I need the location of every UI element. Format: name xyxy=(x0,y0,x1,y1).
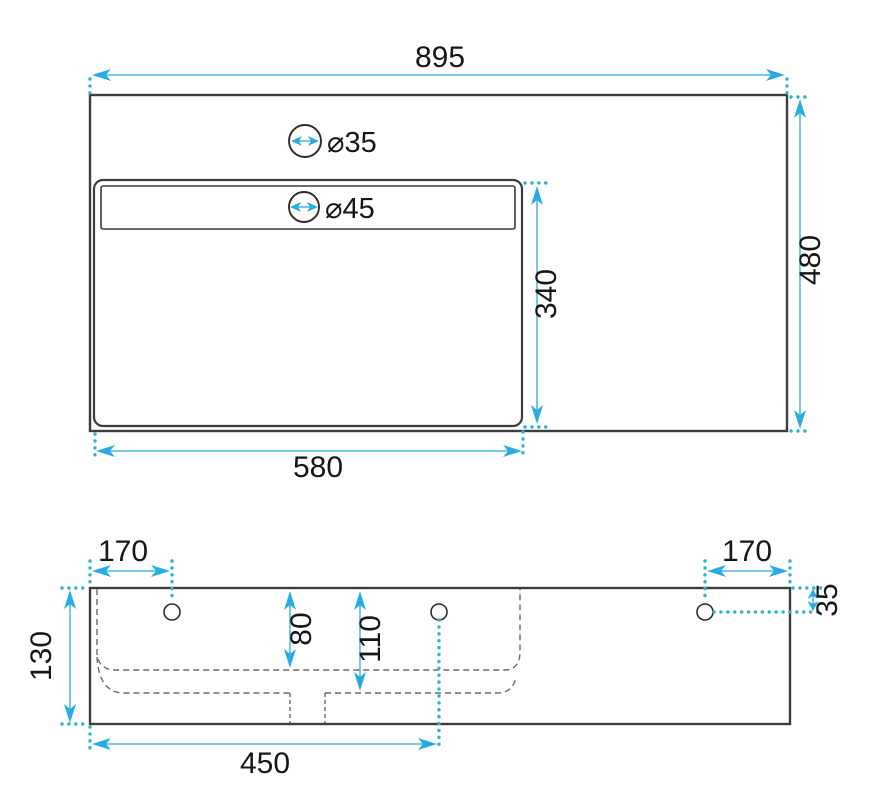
left-mounting-hole xyxy=(164,604,180,620)
overall-width-label: 895 xyxy=(415,41,465,74)
drawing-svg: ⌀35 ⌀45 895 480 xyxy=(0,0,869,804)
front-view: 170 170 35 130 xyxy=(25,535,844,780)
center-mounting-hole xyxy=(431,604,447,620)
basin-width-label: 580 xyxy=(293,451,343,484)
right-hole-inset-label: 170 xyxy=(722,535,772,568)
drain-offset-label: 450 xyxy=(240,747,290,780)
basin-outer-depth-label: 110 xyxy=(354,615,387,663)
overall-depth-label: 480 xyxy=(794,235,827,285)
overflow-hole-diameter-label: ⌀45 xyxy=(325,193,375,225)
dim-overall-width: 895 xyxy=(90,41,787,93)
left-hole-inset-label: 170 xyxy=(98,535,148,568)
technical-drawing-sheet: ⌀35 ⌀45 895 480 xyxy=(0,0,869,804)
hole-drop-label: 35 xyxy=(811,583,844,616)
dim-overall-depth: 480 xyxy=(791,97,827,431)
right-mounting-hole xyxy=(697,604,713,620)
overflow-hole xyxy=(289,192,319,222)
total-height-label: 130 xyxy=(25,631,58,681)
faucet-hole-diameter-label: ⌀35 xyxy=(327,127,377,159)
faucet-hole xyxy=(289,125,321,157)
dim-total-height: 130 xyxy=(25,588,87,724)
basin-depth-label: 340 xyxy=(530,269,563,319)
basin-inner-depth-label: 80 xyxy=(285,612,318,645)
top-view: ⌀35 ⌀45 895 480 xyxy=(90,41,827,484)
dim-basin-width: 580 xyxy=(95,432,523,484)
